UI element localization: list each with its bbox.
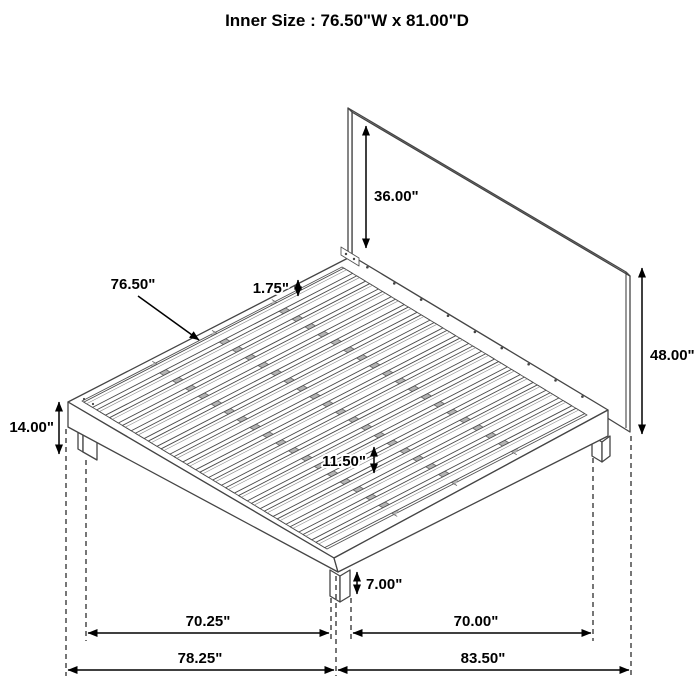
dimension-right-leg-span: 70.00" — [353, 613, 591, 633]
dim-label-slat-spacing: 11.50" — [322, 453, 366, 470]
dimension-leg-height: 7.00" — [357, 572, 402, 594]
dim-label-slat-length: 76.50" — [111, 276, 156, 293]
dim-label-slat-thickness: 1.75" — [253, 280, 289, 297]
dimension-platform-height: 14.00" — [9, 402, 59, 454]
dim-label-left-leg-span: 70.25" — [186, 613, 231, 630]
dim-label-depth-overall: 78.25" — [178, 650, 223, 667]
front-leg — [330, 570, 350, 602]
bed-dimension-diagram: Inner Size : 76.50"W x 81.00"D — [0, 0, 700, 700]
dimension-slat-length: 76.50" — [111, 276, 199, 340]
dimension-width-overall: 83.50" — [338, 650, 629, 670]
diagram-canvas: Inner Size : 76.50"W x 81.00"D — [0, 0, 700, 700]
dim-label-headboard-height: 48.00" — [650, 347, 695, 364]
page-title: Inner Size : 76.50"W x 81.00"D — [225, 11, 469, 30]
dim-label-leg-height: 7.00" — [366, 576, 402, 593]
dim-label-width-overall: 83.50" — [461, 650, 506, 667]
dimension-depth-overall: 78.25" — [68, 650, 334, 670]
dim-label-headboard-above-platform: 36.00" — [374, 188, 419, 205]
dim-label-right-leg-span: 70.00" — [454, 613, 499, 630]
dimension-headboard-height: 48.00" — [642, 268, 695, 434]
dim-label-platform-height: 14.00" — [9, 419, 54, 436]
dimension-left-leg-span: 70.25" — [88, 613, 329, 633]
